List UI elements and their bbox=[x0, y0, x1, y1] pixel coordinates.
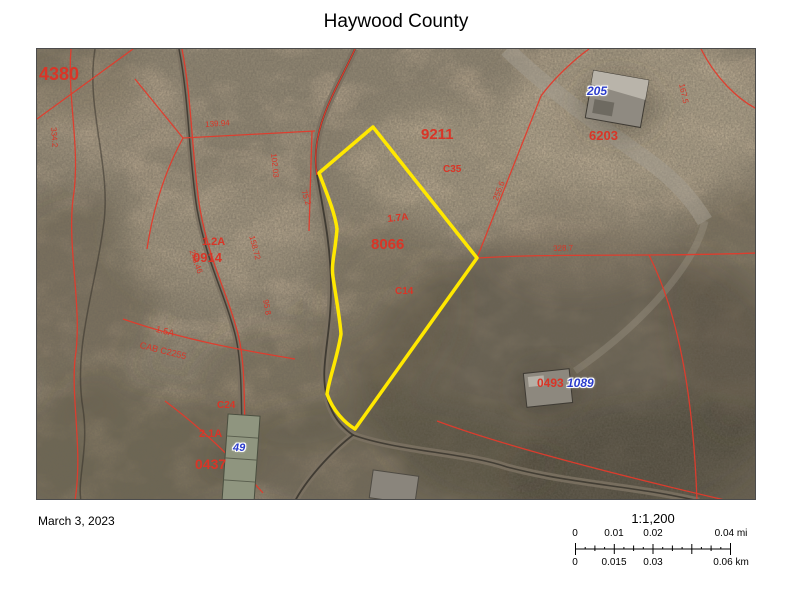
map-label-dim-102-03: 102.03 bbox=[269, 153, 280, 178]
scale-label: 0.015 bbox=[601, 557, 626, 568]
map-label-acreage-2-1a: 2.1A bbox=[199, 429, 222, 440]
map-label-parcel-c35: C35 bbox=[443, 165, 461, 175]
map-label-acreage-1-2a: 1.2A bbox=[202, 237, 225, 248]
map-label-dim-328-7: 328.7 bbox=[553, 244, 573, 253]
scale-label: 0.04 mi bbox=[715, 528, 748, 539]
map-label-dim-334-2: 334.2 bbox=[49, 127, 58, 148]
scale-bar-group: 1:1,200 00.010.020.04 mi 00.0150.030.06 … bbox=[575, 511, 731, 569]
map-label-acreage-1-7a: 1.7A bbox=[387, 213, 409, 225]
map-label-plat-area-1-5a: 1.5A bbox=[155, 325, 175, 338]
map-label-plat-cab-c2255: CAB C2255 bbox=[139, 341, 187, 361]
map-label-dim-158-72: 158.72 bbox=[247, 235, 261, 261]
scale-mi-labels: 00.010.020.04 mi bbox=[575, 528, 731, 540]
scale-label: 0.03 bbox=[643, 557, 662, 568]
map-label-layer: 4380921180661.2A0914C35C14620304932.1A04… bbox=[37, 49, 756, 500]
map-label-dim-255-6: 255.6 bbox=[492, 180, 507, 202]
scale-km-labels: 00.0150.030.06 km bbox=[575, 557, 731, 569]
map-label-parcel-c24: C24 bbox=[217, 401, 235, 411]
map-label-dim-95-8: 95.8 bbox=[261, 299, 272, 316]
scale-label: 0.02 bbox=[643, 528, 662, 539]
map-print-page: { "title": "Haywood County", "footer": {… bbox=[0, 0, 792, 612]
scale-label: 0 bbox=[572, 557, 578, 568]
map-label-dim-75-2: 75.2 bbox=[299, 189, 311, 206]
map-label-parcel-4380: 4380 bbox=[39, 65, 79, 83]
map-label-parcel-9211: 9211 bbox=[421, 127, 454, 142]
map-label-parcel-8066: 8066 bbox=[371, 237, 404, 252]
map-label-parcel-0437: 0437 bbox=[195, 457, 226, 471]
map-label-address-1089: 1089 bbox=[567, 377, 594, 389]
map-label-address-49: 49 bbox=[233, 443, 245, 454]
map-frame: 4380921180661.2A0914C35C14620304932.1A04… bbox=[36, 48, 756, 500]
scale-label: 0.06 km bbox=[713, 557, 749, 568]
map-label-parcel-c14: C14 bbox=[395, 287, 413, 297]
page-title: Haywood County bbox=[0, 11, 792, 33]
map-label-address-205: 205 bbox=[587, 85, 607, 97]
scale-label: 0.01 bbox=[604, 528, 623, 539]
map-label-parcel-6203: 6203 bbox=[589, 129, 618, 142]
scale-label: 0 bbox=[572, 528, 578, 539]
map-label-dim-139-94: 139.94 bbox=[205, 119, 230, 129]
map-label-dim-167-5: 167.5 bbox=[677, 83, 689, 104]
map-date: March 3, 2023 bbox=[38, 514, 115, 528]
scale-ratio: 1:1,200 bbox=[575, 511, 731, 528]
scale-bar-ticks bbox=[575, 541, 731, 557]
map-label-parcel-0493: 0493 bbox=[537, 377, 564, 389]
